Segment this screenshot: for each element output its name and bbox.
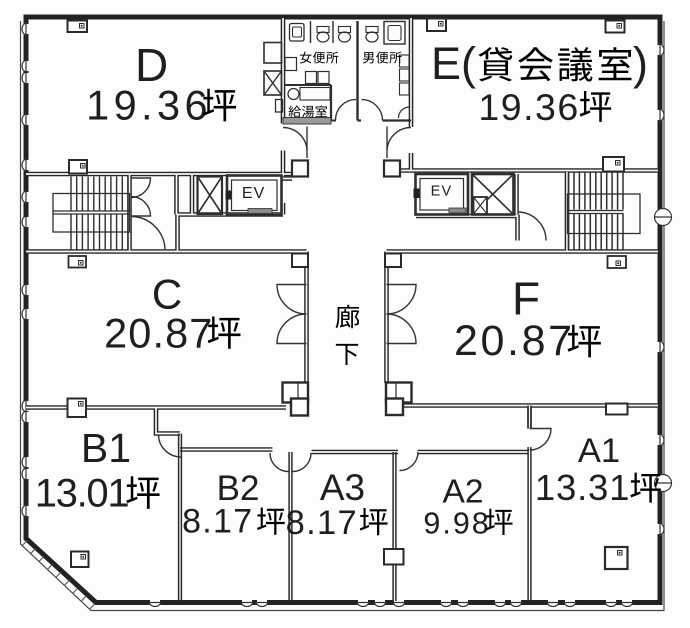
svg-text:9.98: 9.98 bbox=[423, 507, 490, 541]
svg-text:EV: EV bbox=[431, 184, 453, 200]
svg-text:E(: E( bbox=[431, 38, 476, 89]
svg-text:A3: A3 bbox=[320, 467, 365, 508]
svg-text:20.87: 20.87 bbox=[104, 310, 213, 357]
svg-text:8.17: 8.17 bbox=[286, 504, 358, 542]
svg-text:19.36: 19.36 bbox=[86, 81, 212, 128]
svg-text:8.17: 8.17 bbox=[182, 503, 253, 541]
svg-text:): ) bbox=[633, 38, 648, 89]
svg-text:A2: A2 bbox=[443, 474, 484, 511]
svg-text:EV: EV bbox=[242, 185, 266, 202]
svg-text:19.36: 19.36 bbox=[478, 86, 579, 128]
svg-text:20.87: 20.87 bbox=[454, 317, 575, 365]
svg-text:13.01: 13.01 bbox=[35, 472, 129, 516]
svg-text:B1: B1 bbox=[81, 425, 131, 471]
svg-text:A1: A1 bbox=[578, 432, 620, 470]
svg-text:13.31: 13.31 bbox=[535, 467, 630, 508]
